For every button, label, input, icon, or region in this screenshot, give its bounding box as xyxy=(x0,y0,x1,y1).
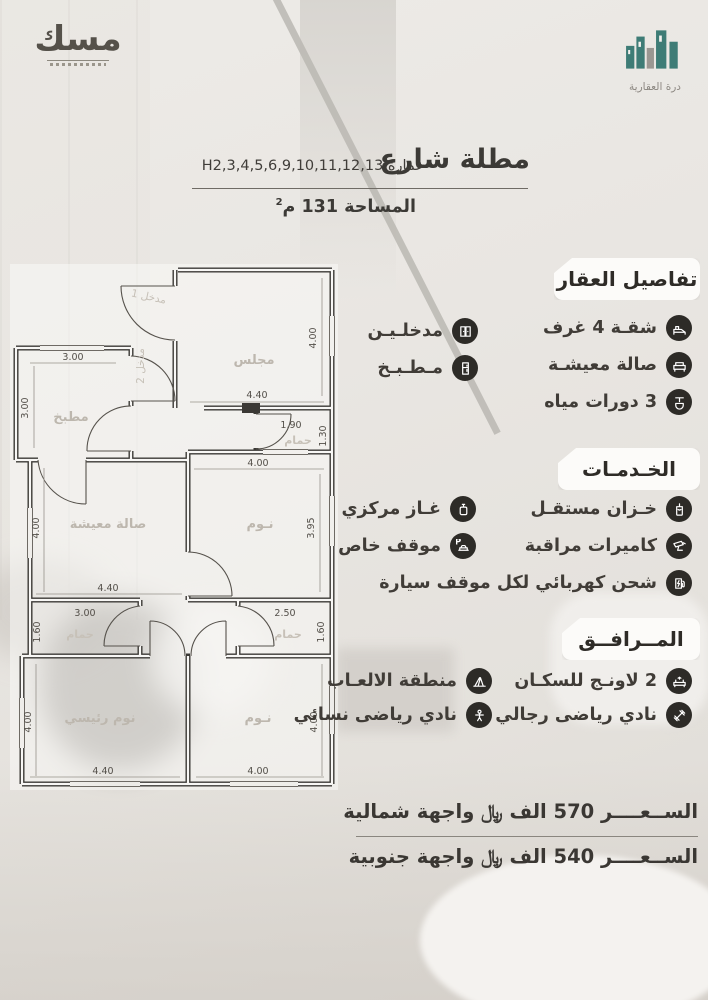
dim-kitchen-w: 3.00 xyxy=(62,352,83,363)
detail-item-label: شقـة 4 غرف xyxy=(543,318,657,338)
durrah-buildings-icon xyxy=(624,26,686,74)
service-item-label: شحن كهربائي لكل موقف سيارة xyxy=(379,573,657,593)
detail-item-label: مـطـبـخ xyxy=(377,358,443,378)
title-divider xyxy=(192,188,528,189)
dim-master-w: 4.40 xyxy=(92,766,113,777)
dim-bath-left-w: 3.00 xyxy=(74,608,95,619)
room-label-kitchen: مطبخ xyxy=(53,410,88,425)
detail-item-kitchen: مـطـبـخ xyxy=(377,355,478,381)
price-south: الســعــــر 540 الف ﷼ واجهة جنوبية xyxy=(349,845,698,868)
amenity-item-gym-women: نادي رياضى نسائي xyxy=(294,702,492,728)
amenity-item-label: نادي رياضى رجالي xyxy=(495,705,657,725)
service-item-label: خـزان مستقـل xyxy=(531,499,658,519)
durrah-logo-text: درة العقارية xyxy=(618,81,692,93)
amenity-item-label: منطقة الالعـاب xyxy=(327,671,457,691)
room-label-bathroom-left: حمام xyxy=(66,628,94,641)
dim-kitchen-h: 3.00 xyxy=(20,397,31,418)
dim-bed-mid-w: 4.00 xyxy=(247,458,268,469)
misk-logo: مسك xyxy=(30,22,126,66)
dim-majlis-h: 4.00 xyxy=(308,327,319,348)
area-text: المساحة 131 م xyxy=(283,197,416,217)
detail-item-bathrooms: 3 دورات مياه xyxy=(544,389,692,415)
amenity-item-label: 2 لاونـج للسكـان xyxy=(514,671,657,691)
dim-bath-left-h: 1.60 xyxy=(32,621,43,642)
amenity-item-gym-men: نادي رياضى رجالي xyxy=(495,702,692,728)
misk-caption-dots xyxy=(50,63,106,66)
service-item-ev-charging: شحن كهربائي لكل موقف سيارة xyxy=(379,570,692,596)
svg-text:P: P xyxy=(456,539,461,547)
room-label-bathroom-right: حمام xyxy=(274,628,302,641)
dim-living-w: 4.40 xyxy=(97,583,118,594)
section-title-details: تفاصيل العقار xyxy=(554,258,700,300)
detail-item-label: صالة معيشـة xyxy=(548,355,657,375)
dim-bath-right-w: 2.50 xyxy=(274,608,295,619)
detail-item-label: مدخلـيـن xyxy=(367,321,443,341)
detail-item-label: 3 دورات مياه xyxy=(544,392,657,412)
detail-item-living: صالة معيشـة xyxy=(548,352,692,378)
building-numbers: عمارة H2,3,4,5,6,9,10,11,12,13 xyxy=(202,158,424,174)
water-tank-icon xyxy=(666,496,692,522)
service-item-label: موقف خاص xyxy=(338,536,441,556)
bed-icon xyxy=(666,315,692,341)
dim-master-h: 4.00 xyxy=(23,711,34,732)
dim-living-h: 4.00 xyxy=(31,517,42,538)
area-value: المساحة 131 م2 xyxy=(276,197,416,217)
toilet-icon xyxy=(666,389,692,415)
service-item-label: كاميرات مراقبة xyxy=(525,536,657,556)
label-entrance-2: مدخل 2 xyxy=(135,348,147,384)
price-divider xyxy=(356,836,698,837)
room-label-bathroom-top: حمام xyxy=(284,434,312,447)
durrah-logo: درة العقارية xyxy=(618,26,692,93)
dim-bed-bottom-w: 4.00 xyxy=(247,766,268,777)
door-icon xyxy=(452,318,478,344)
dim-majlis-w: 4.40 xyxy=(246,390,267,401)
service-item-parking: P موقف خاص xyxy=(338,533,476,559)
service-item-cctv: كاميرات مراقبة xyxy=(525,533,692,559)
service-item-tank: خـزان مستقـل xyxy=(531,496,693,522)
room-label-master-bedroom: نوم رئيسي xyxy=(64,711,135,726)
cctv-icon xyxy=(666,533,692,559)
lounge-icon xyxy=(666,668,692,694)
gym-men-icon xyxy=(666,702,692,728)
section-title-amenities: المــرافــق xyxy=(562,618,700,660)
room-label-living: صالة معيشة xyxy=(70,517,147,532)
service-item-gas: غـاز مركزي xyxy=(342,496,477,522)
amenity-item-playground: منطقة الالعـاب xyxy=(327,668,492,694)
area-superscript: 2 xyxy=(276,197,283,208)
room-label-majlis: مجلس xyxy=(233,353,274,368)
gym-women-icon xyxy=(466,702,492,728)
parking-icon: P xyxy=(450,533,476,559)
room-label-bedroom-mid: نـوم xyxy=(246,517,273,532)
amenity-item-label: نادي رياضى نسائي xyxy=(294,705,457,725)
floorplan: 3.00 3.00 4.40 4.00 1.90 1.30 4.00 3.95 … xyxy=(8,256,340,792)
floorplan-svg: 3.00 3.00 4.40 4.00 1.90 1.30 4.00 3.95 … xyxy=(8,256,340,792)
dim-bath-top-h: 1.30 xyxy=(318,425,329,446)
flyer-page: مسك درة العقارية مطلة شارع عمارة H2,3,4,… xyxy=(0,0,708,1000)
dim-bed-mid-h: 3.95 xyxy=(306,517,317,538)
dim-bath-top-w: 1.90 xyxy=(280,420,301,431)
detail-item-apartment: شقـة 4 غرف xyxy=(543,315,692,341)
detail-item-entrances: مدخلـيـن xyxy=(367,318,478,344)
amenity-item-lounge: 2 لاونـج للسكـان xyxy=(514,668,692,694)
misk-logo-text: مسك xyxy=(30,22,126,56)
playground-icon xyxy=(466,668,492,694)
kitchen-icon xyxy=(452,355,478,381)
ev-charger-icon xyxy=(666,570,692,596)
dim-bath-right-h: 1.60 xyxy=(316,621,327,642)
service-item-label: غـاز مركزي xyxy=(342,499,442,519)
gas-icon xyxy=(450,496,476,522)
section-title-services: الخـدمـات xyxy=(558,448,700,490)
room-label-bedroom-bottom: نـوم xyxy=(244,711,271,726)
misk-caption-line xyxy=(47,60,109,61)
price-north: الســعــــر 570 الف ﷼ واجهة شمالية xyxy=(343,800,698,823)
sofa-icon xyxy=(666,352,692,378)
